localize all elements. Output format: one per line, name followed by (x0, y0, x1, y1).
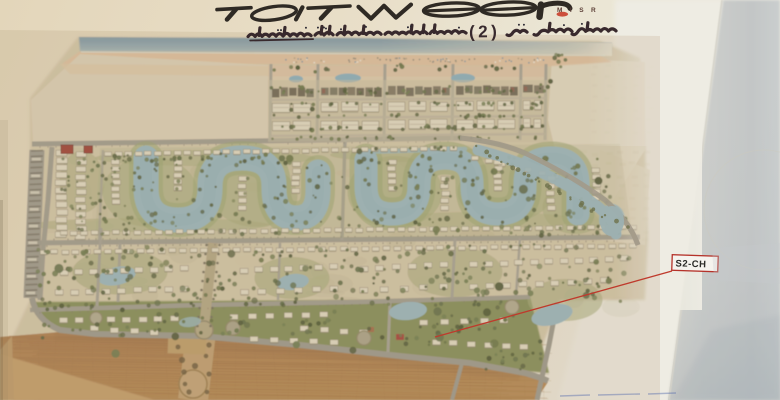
svg-text:(2): (2) (469, 22, 501, 41)
svg-text:MISR: MISR (557, 7, 603, 14)
svg-text:S2-CH: S2-CH (675, 258, 706, 270)
